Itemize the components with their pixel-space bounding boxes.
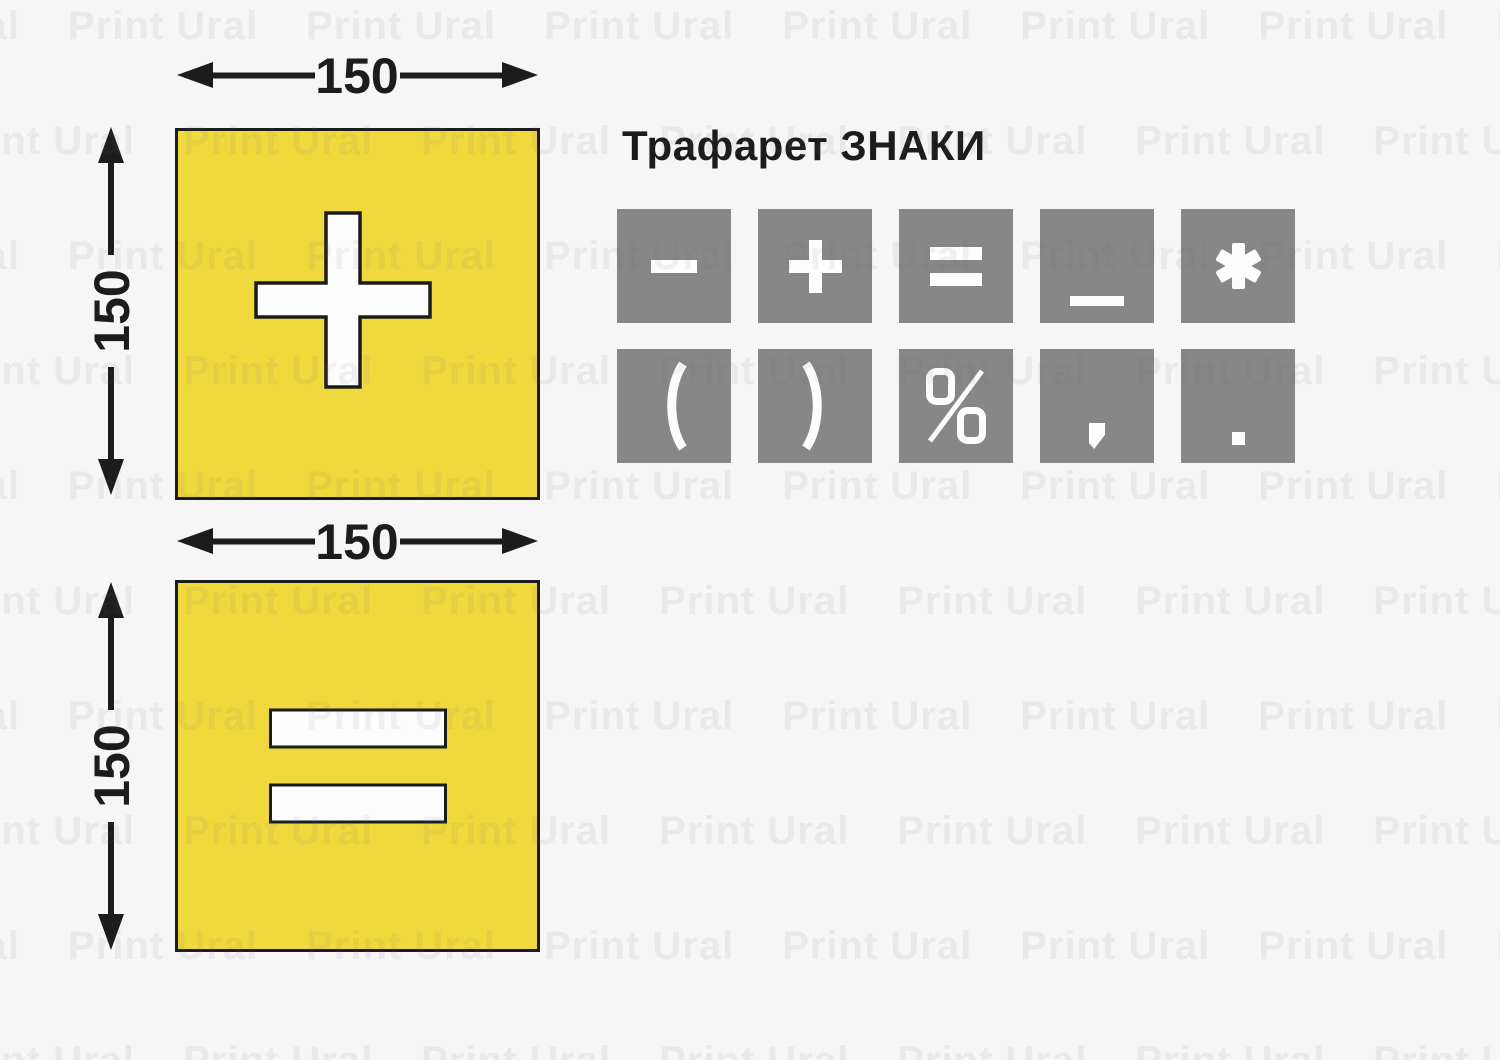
height-label: 150 (84, 269, 140, 352)
arrowhead-down-icon (98, 459, 124, 495)
height-label: 150 (84, 724, 140, 807)
watermark-text: Print Ural (1258, 694, 1448, 739)
stencil-cell-percent (899, 349, 1013, 463)
watermark-text: Print Ural (1020, 924, 1210, 969)
watermark-row: Print UralPrint UralPrint UralPrint Ural… (0, 1039, 1500, 1060)
watermark-text: Print Ural (1135, 1039, 1325, 1060)
width-dimension-stencil-1: 150 (175, 52, 540, 98)
watermark-text: Print Ural (659, 579, 849, 624)
height-dimension-stencil-1: 150 (88, 125, 134, 497)
open-paren-shape (672, 364, 683, 448)
watermark-text: Print Ural (1135, 579, 1325, 624)
watermark-text: Print Ural (544, 694, 734, 739)
watermark-text: Print Ural (1020, 4, 1210, 49)
watermark-text: Print Ural (0, 4, 20, 49)
watermark-text: Print Ural (1373, 579, 1500, 624)
watermark-text: Print Ural (421, 1039, 611, 1060)
watermark-text: Print Ural (782, 4, 972, 49)
watermark-text: Print Ural (659, 809, 849, 854)
stencil-cell-comma (1040, 349, 1154, 463)
watermark-text: Print Ural (0, 924, 20, 969)
watermark-text: Print Ural (1373, 349, 1500, 394)
page-title: Трафарет ЗНАКИ (622, 124, 986, 168)
stencil-cell-period (1181, 349, 1295, 463)
watermark-text: Print Ural (897, 809, 1087, 854)
watermark-text: Print Ural (1135, 119, 1325, 164)
equals-cutout (269, 709, 447, 824)
dimension-line (108, 822, 114, 922)
watermark-row: Print UralPrint UralPrint UralPrint Ural… (0, 4, 1500, 49)
watermark-text: Print Ural (1020, 464, 1210, 509)
dimension-line (205, 73, 315, 79)
plus-cutout-shape (256, 213, 430, 387)
watermark-text: Print Ural (306, 4, 496, 49)
width-dimension-stencil-2: 150 (175, 518, 540, 564)
arrowhead-right-icon (502, 528, 538, 554)
stencil-cell-open-paren (617, 349, 731, 463)
watermark-text: Print Ural (1373, 809, 1500, 854)
dimension-line (108, 610, 114, 710)
watermark-text: Print Ural (897, 1039, 1087, 1060)
watermark-text: Print Ural (1373, 1039, 1500, 1060)
open-paren-icon (661, 360, 687, 452)
stencil-cell-plus (758, 209, 872, 323)
watermark-text: Print Ural (1135, 809, 1325, 854)
watermark-text: Print Ural (1258, 4, 1448, 49)
watermark-text: Print Ural (544, 464, 734, 509)
stencil-cell-close-paren (758, 349, 872, 463)
stencil-cell-underscore (1040, 209, 1154, 323)
watermark-text: Print Ural (782, 924, 972, 969)
period-icon (1232, 432, 1245, 445)
equals-stencil-square (175, 580, 540, 952)
close-paren-shape (806, 364, 817, 448)
underscore-icon (1070, 296, 1124, 306)
arrowhead-down-icon (98, 914, 124, 950)
watermark-text: Print Ural (0, 464, 20, 509)
stencil-product-diagram: 150 150 150 150 Трафарет ЗНАКИ (0, 0, 1500, 1060)
plus-cutout (254, 211, 432, 389)
plus-stencil-square (175, 128, 540, 500)
dimension-line (400, 539, 510, 545)
watermark-text: Print Ural (897, 579, 1087, 624)
equals-icon (930, 247, 982, 286)
watermark-text: Print Ural (0, 234, 20, 279)
dimension-line (108, 155, 114, 255)
signs-grid (617, 209, 1295, 463)
comma-icon (1089, 423, 1105, 449)
percent-top-zero (930, 372, 952, 402)
watermark-text: Print Ural (659, 1039, 849, 1060)
dimension-line (108, 367, 114, 467)
watermark-text: Print Ural (544, 4, 734, 49)
watermark-text: Print Ural (1496, 694, 1500, 739)
arrowhead-right-icon (502, 62, 538, 88)
close-paren-icon (802, 360, 828, 452)
percent-bottom-zero (961, 411, 983, 441)
dimension-line (400, 73, 510, 79)
watermark-text: Print Ural (183, 1039, 373, 1060)
watermark-text: Print Ural (68, 4, 258, 49)
plus-icon (789, 240, 842, 293)
watermark-text: Print Ural (1020, 694, 1210, 739)
watermark-text: Print Ural (0, 1039, 135, 1060)
stencil-cell-asterisk (1181, 209, 1295, 323)
asterisk-icon (1232, 243, 1245, 289)
watermark-text: Print Ural (782, 464, 972, 509)
watermark-text: Print Ural (1373, 119, 1500, 164)
watermark-text: Print Ural (0, 694, 20, 739)
height-dimension-stencil-2: 150 (88, 580, 134, 952)
minus-icon (651, 260, 697, 273)
width-label: 150 (315, 514, 398, 570)
stencil-cell-equals (899, 209, 1013, 323)
stencil-cell-minus (617, 209, 731, 323)
percent-icon (925, 367, 987, 445)
watermark-text: Print Ural (1258, 924, 1448, 969)
watermark-text: Print Ural (1258, 464, 1448, 509)
watermark-text: Print Ural (782, 694, 972, 739)
percent-slash (930, 371, 982, 441)
dimension-line (205, 539, 315, 545)
watermark-text: Print Ural (1496, 4, 1500, 49)
width-label: 150 (315, 48, 398, 104)
watermark-text: Print Ural (1496, 234, 1500, 279)
watermark-text: Print Ural (1496, 464, 1500, 509)
watermark-text: Print Ural (1496, 924, 1500, 969)
watermark-text: Print Ural (544, 924, 734, 969)
